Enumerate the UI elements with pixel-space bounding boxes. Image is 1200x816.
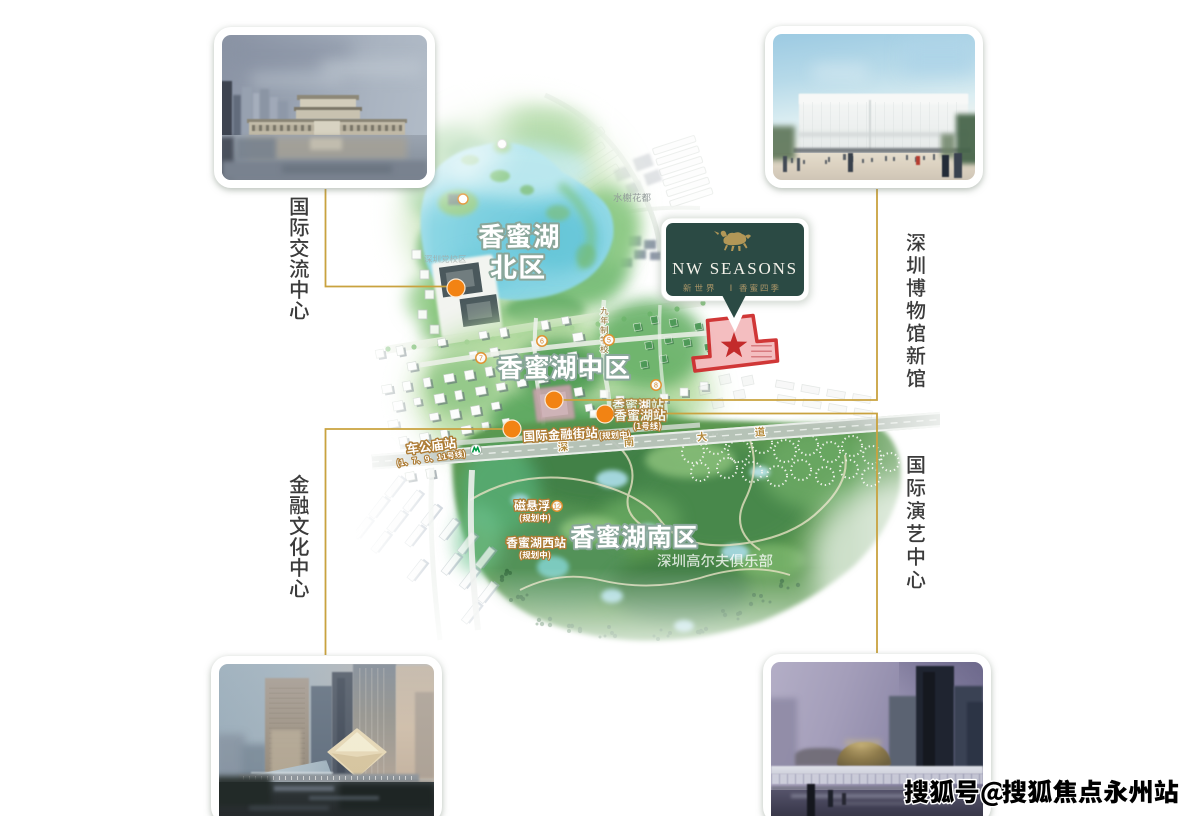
svg-text:7: 7: [479, 356, 483, 363]
svg-text:12: 12: [553, 504, 561, 511]
svg-text:8: 8: [654, 383, 658, 390]
svg-text:6: 6: [540, 339, 544, 346]
svg-text:5: 5: [607, 338, 611, 345]
svg-text:NW SEASONS: NW SEASONS: [672, 259, 798, 278]
